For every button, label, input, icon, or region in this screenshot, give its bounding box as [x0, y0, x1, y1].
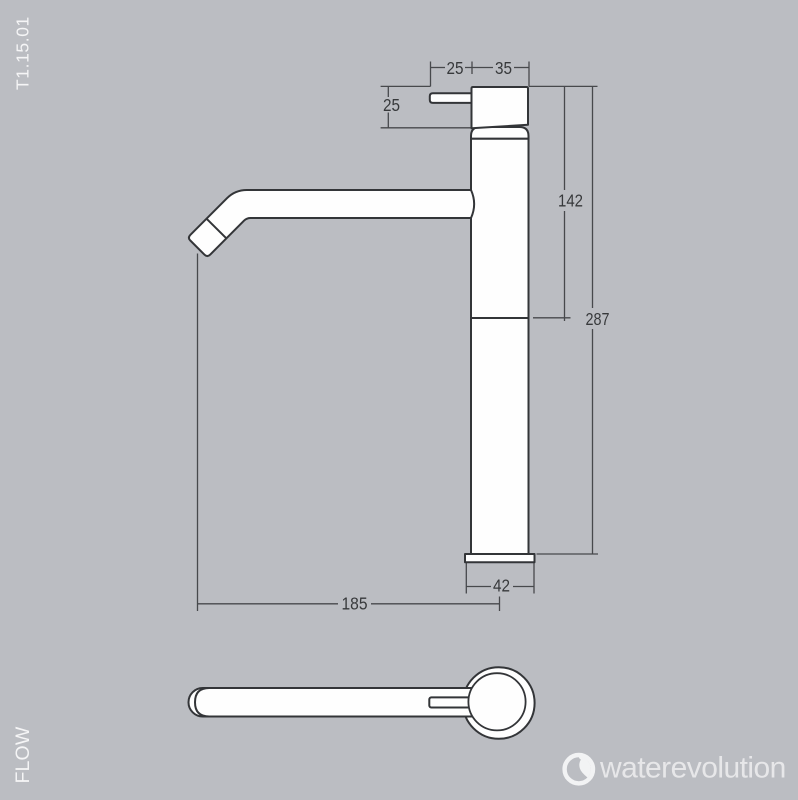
svg-text:waterevolution: waterevolution: [599, 752, 786, 785]
svg-text:25: 25: [383, 95, 400, 115]
svg-text:287: 287: [586, 309, 610, 329]
svg-text:142: 142: [558, 191, 583, 211]
svg-text:35: 35: [495, 58, 512, 78]
svg-text:25: 25: [447, 58, 464, 78]
svg-text:42: 42: [493, 576, 510, 596]
svg-text:FLOW: FLOW: [12, 726, 34, 783]
svg-text:T1.15.01: T1.15.01: [13, 16, 33, 90]
svg-text:185: 185: [342, 594, 368, 614]
